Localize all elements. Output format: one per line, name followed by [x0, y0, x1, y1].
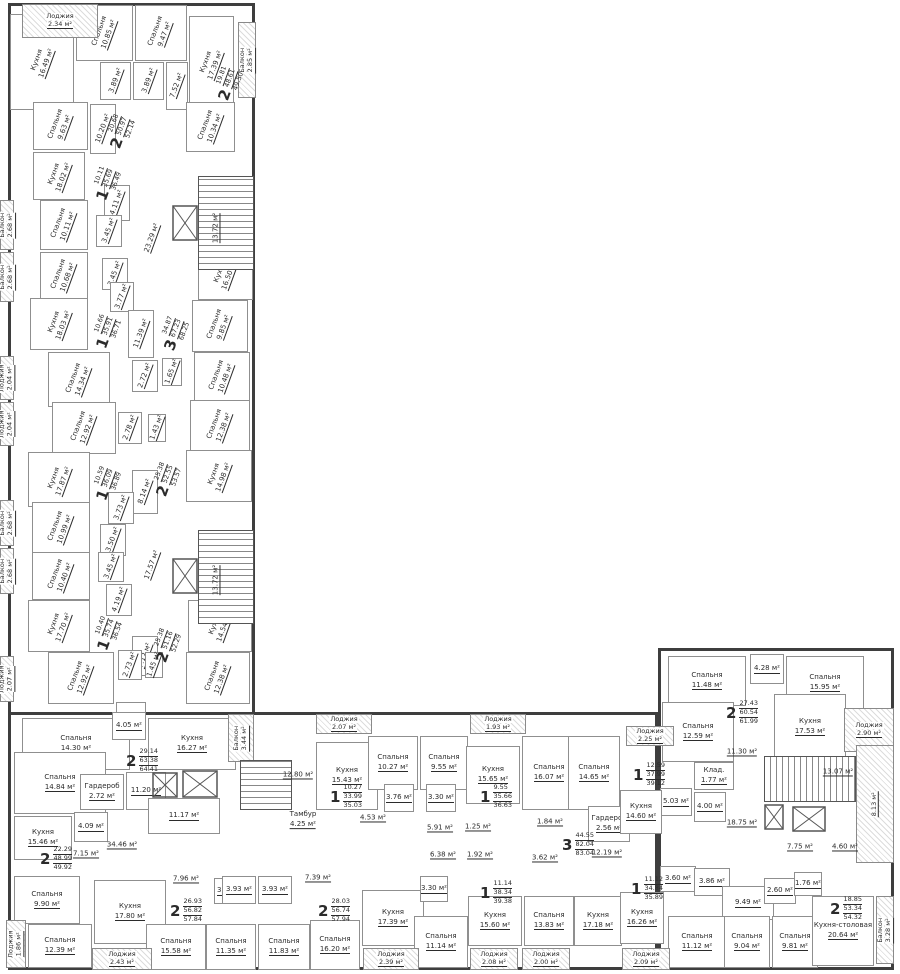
room-area: 15.58 м²	[161, 947, 191, 956]
area-label-name: Тамбур	[290, 811, 317, 819]
room: Кухня 17.70 м²	[28, 600, 90, 652]
apartment-total-area-with-balcony: 49.92	[53, 864, 72, 872]
apartment-total-area-with-balcony: 61.99	[739, 718, 758, 726]
area-label-value: 13.72 м²	[211, 565, 220, 595]
room-label: Кухня	[482, 766, 504, 774]
area-label-value: 6.38 м²	[430, 850, 456, 859]
room-area: 9.81 м²	[782, 942, 808, 951]
room-label: Кухня	[119, 903, 141, 911]
floor-plan: Кухня 16.49 м² Спальня 10.85 м² Спальня …	[0, 0, 900, 974]
balcony: Лоджия 2.39 м²	[363, 948, 419, 970]
room: Спальня 12.92 м²	[48, 652, 114, 704]
room-label: Спальня	[682, 723, 713, 731]
room: Спальня 12.92 м²	[52, 402, 116, 454]
balcony: Балкон 2.68 м²	[0, 548, 14, 594]
apartment-total-area-with-balcony: 83.04	[575, 850, 594, 858]
balcony-area: 2.25 м²	[637, 736, 663, 744]
area-label-value: 1.84 м²	[537, 817, 563, 826]
room: Кухня 14.60 м²	[620, 790, 662, 834]
room: Кухня 17.53 м²	[774, 694, 846, 760]
room-label: Кухня	[587, 912, 609, 920]
balcony-area: 2.07 м²	[7, 666, 15, 692]
balcony-label: Лоджия	[635, 728, 664, 735]
room-label: Спальня	[578, 764, 609, 772]
area-label: 13.07 м²	[823, 767, 853, 776]
room: Кухня 18.02 м²	[33, 152, 85, 200]
area-label: 7.96 м²	[173, 874, 199, 883]
room: Спальня 10.11 м²	[40, 200, 88, 250]
room-label: Спальня	[809, 674, 840, 682]
room-label: Спальня	[268, 938, 299, 946]
balcony-label: Балкон	[0, 212, 6, 239]
apartment-total-area-with-balcony: 39.38	[493, 898, 512, 906]
room-area: 1.43 м²	[148, 414, 165, 441]
room: Кухня 16.27 м²	[148, 718, 236, 770]
room-area: 3.93 м²	[262, 885, 288, 894]
balcony-area: 1.93 м²	[485, 724, 511, 732]
apartment-room-count: 1	[330, 788, 340, 806]
room-label: Спальня	[60, 735, 91, 743]
apartment-room-count: 1	[631, 880, 641, 898]
apartment-room-count: 1	[480, 788, 490, 806]
balcony: Лоджия 1.86 м²	[6, 920, 26, 968]
area-label-value: 1.25 м²	[465, 822, 491, 831]
room-label: Спальня	[44, 937, 75, 945]
apartment-total-area-with-balcony: 36.63	[493, 802, 512, 810]
room: Спальня 9.47 м²	[135, 5, 187, 61]
apartment-stats: 2 28.03 56.74 57.94	[318, 898, 350, 923]
room-label: Спальня	[44, 774, 75, 782]
room: 3.76 м²	[384, 784, 414, 812]
balcony-label: Лоджия	[107, 951, 136, 958]
balcony: Лоджия 2.07 м²	[316, 714, 372, 734]
room-area: 3.45 м²	[102, 553, 119, 580]
room-area: 16.27 м²	[177, 744, 207, 753]
room: Спальня 9.90 м²	[14, 876, 80, 924]
area-label: 5.91 м²	[427, 823, 453, 832]
area-label: 4.60 м²	[832, 842, 858, 851]
apartment-total-area-with-balcony: 57.94	[331, 916, 350, 924]
room-area: 3.89 м²	[107, 67, 124, 94]
room: 1.65 м²	[162, 358, 182, 386]
room-area: 14.65 м²	[579, 773, 609, 782]
room: Спальня 12.38 м²	[186, 652, 250, 704]
room-area: 9.90 м²	[34, 900, 60, 909]
room: Кухня 18.03 м²	[30, 298, 88, 350]
apartment-stats: 1 10.27 33.99 35.03	[330, 784, 362, 809]
balcony: Лоджия 1.93 м²	[470, 714, 526, 734]
balcony-area: 2.85 м²	[247, 47, 255, 73]
room-area: 17.80 м²	[115, 912, 145, 921]
room: Спальня 11.48 м²	[668, 656, 746, 706]
apartment-stats: 1 9.55 35.66 36.63	[480, 784, 512, 809]
room-area: 10.27 м²	[378, 763, 408, 772]
balcony-area: 1.86 м²	[16, 931, 24, 957]
apartment-room-count: 2	[726, 704, 736, 722]
area-label-value: 7.15 м²	[73, 849, 99, 858]
room-area: 3.30 м²	[421, 884, 447, 893]
area-label-value: 3.62 м²	[532, 853, 558, 862]
room-label: Спальня	[691, 672, 722, 680]
area-label: 4.53 м²	[360, 813, 386, 822]
room-area: 3.45 м²	[100, 217, 117, 244]
room: 2.60 м²	[764, 878, 796, 904]
room-area: 4.28 м²	[754, 664, 780, 673]
room-area: 1.65 м²	[163, 358, 180, 385]
balcony: Балкон 3.28 м²	[876, 896, 894, 964]
apartment-stats: 1 11.12 34.84 35.89	[631, 876, 663, 901]
room-area: 12.39 м²	[45, 946, 75, 955]
balcony-area: 2.07 м²	[331, 724, 357, 732]
room-area: 3.89 м²	[140, 67, 157, 94]
apartment-total-area-with-balcony: 35.89	[644, 894, 663, 902]
balcony-area: 2.68 м²	[7, 558, 15, 584]
room-area: 14.60 м²	[626, 812, 656, 821]
balcony-label: Лоджия	[531, 951, 560, 958]
room-label: Кухня	[382, 909, 404, 917]
room-area: 17.39 м²	[378, 918, 408, 927]
staircase-icon	[198, 530, 254, 624]
apartment-stats: 1 11.14 38.34 39.38	[480, 880, 512, 905]
room: Спальня 12.39 м²	[28, 924, 92, 968]
room: Кухня 14.98 м²	[186, 450, 252, 502]
room: Спальня 10.68 м²	[40, 252, 88, 300]
balcony-label: Балкон	[877, 917, 884, 944]
room: 2.73 м²	[118, 650, 142, 680]
room-label: Спальня	[319, 936, 350, 944]
room: 4.19 м²	[106, 584, 132, 616]
area-label: 12.80 м²	[283, 770, 313, 779]
room: Спальня 9.63 м²	[33, 102, 88, 150]
apartment-stats: 2 29.14 63.38 64.41	[126, 748, 158, 773]
area-label-value: 4.25 м²	[290, 820, 316, 829]
room: Кухня 17.18 м²	[574, 896, 622, 946]
room: 3.89 м²	[133, 62, 164, 100]
area-label-value: 7.39 м²	[305, 873, 331, 882]
balcony: Балкон 2.68 м²	[0, 200, 14, 250]
room-area: 20.64 м²	[828, 931, 858, 940]
room-area: 1.77 м²	[701, 776, 727, 785]
apartment-room-count: 1	[633, 766, 643, 784]
area-label: 1.84 м²	[537, 817, 563, 826]
area-label: 7.15 м²	[73, 849, 99, 858]
apartment-room-count: 2	[40, 850, 50, 868]
apartment-total-area-with-balcony: 54.32	[843, 914, 862, 922]
room: Спальня 13.83 м²	[524, 896, 574, 946]
room-label: Кухня	[630, 803, 652, 811]
balcony-label: Лоджия	[483, 716, 512, 723]
room-area: 11.35 м²	[216, 947, 246, 956]
room-area: 3.73 м²	[112, 494, 129, 521]
room-area: 3.76 м²	[386, 793, 412, 802]
elevator-icon	[792, 806, 826, 832]
room-area: 11.48 м²	[692, 681, 722, 690]
balcony-area: 8.13 м²	[871, 791, 879, 817]
room-label: Спальня	[428, 754, 459, 762]
room: 5.03 м²	[660, 788, 692, 816]
room-label: Спальня	[533, 912, 564, 920]
room-label: Спальня	[425, 933, 456, 941]
balcony-area: 2.68 м²	[7, 510, 15, 536]
room-label: Спальня	[779, 933, 810, 941]
room: 4.09 м²	[74, 812, 108, 842]
room: Спальня 9.04 м²	[724, 916, 770, 968]
area-label: 18.75 м²	[727, 818, 757, 827]
elevator-icon	[182, 770, 218, 798]
apartment-room-count: 3	[562, 836, 572, 854]
balcony: Балкон 3.44 м²	[228, 714, 254, 762]
room: 1.43 м²	[148, 414, 166, 442]
room-area: 11.39 м²	[132, 318, 151, 350]
room-area: 2.73 м²	[121, 651, 138, 678]
room-label: Спальня	[215, 938, 246, 946]
balcony-label: Балкон	[0, 510, 6, 537]
room-area: 11.12 м²	[682, 942, 712, 951]
room-label: Спальня	[377, 754, 408, 762]
room: Спальня 9.85 м²	[192, 300, 248, 352]
balcony-label: Лоджия	[479, 951, 508, 958]
area-label: 6.38 м²	[430, 850, 456, 859]
balcony-area: 2.68 м²	[7, 212, 15, 238]
room: Спальня 11.35 м²	[206, 924, 256, 970]
room-area: 7.52 м²	[168, 72, 185, 99]
room: Спальня 14.65 м²	[568, 736, 620, 810]
apartment-stats: 3 44.55 82.04 83.04	[562, 832, 594, 857]
room-area: 3.50 м²	[104, 526, 121, 553]
apartment-total-area-with-balcony: 64.41	[139, 766, 158, 774]
area-label-value: 1.92 м²	[467, 850, 493, 859]
room: Спальня 10.34 м²	[186, 102, 235, 152]
room-label: Кухня	[484, 912, 506, 920]
room: 1.76 м²	[794, 872, 822, 896]
area-label-value: 34.46 м²	[107, 840, 137, 849]
elevator-icon	[152, 772, 178, 798]
room: 2.72 м²	[132, 360, 158, 392]
area-label-value: 13.07 м²	[823, 767, 853, 776]
room: 3.45 м²	[96, 215, 122, 247]
room-label: Спальня	[160, 938, 191, 946]
room-area: 16.26 м²	[627, 918, 657, 927]
balcony-area: 2.04 м²	[7, 365, 15, 391]
area-label: 13.72 м²	[211, 565, 220, 595]
balcony: Лоджия 2.43 м²	[92, 948, 152, 970]
apartment-stats: 2 18.85 53.34 54.32	[830, 896, 862, 921]
elevator-icon	[172, 558, 198, 594]
staircase-icon	[764, 756, 856, 802]
room-area: 3.60 м²	[665, 874, 691, 883]
room-area: 17.53 м²	[795, 727, 825, 736]
balcony-label: Лоджия	[329, 716, 358, 723]
room-label: Спальня	[731, 933, 762, 941]
staircase-icon	[240, 760, 292, 810]
room-area: 11.83 м²	[269, 947, 299, 956]
room-area: 2.78 м²	[121, 414, 138, 441]
balcony-label: Балкон	[0, 558, 6, 585]
room: 3.89 м²	[100, 62, 131, 100]
room-label: Кухня	[631, 909, 653, 917]
room-area: 11.17 м²	[169, 811, 199, 820]
apartment-total-area-with-balcony: 39.12	[646, 780, 665, 788]
room-area: 15.95 м²	[810, 683, 840, 692]
room-area: 3.77 м²	[113, 283, 130, 310]
balcony: Лоджия 2.00 м²	[522, 948, 570, 970]
room-area: 16.20 м²	[320, 945, 350, 954]
balcony-label: Балкон	[0, 264, 6, 291]
room-label: Гардероб	[84, 783, 119, 791]
balcony: Балкон 2.68 м²	[0, 252, 14, 302]
room-area: 4.19 м²	[110, 586, 127, 613]
room-area: 15.60 м²	[480, 921, 510, 930]
room-label: Спальня	[533, 764, 564, 772]
room: Спальня 10.40 м²	[32, 552, 90, 600]
room: Спальня 10.48 м²	[194, 352, 250, 402]
balcony-label: Балкон	[233, 725, 240, 752]
room-area: 4.00 м²	[697, 802, 723, 811]
room-area: 2.72 м²	[136, 362, 153, 389]
room-area: 13.83 м²	[534, 921, 564, 930]
area-label-value: 4.60 м²	[832, 842, 858, 851]
staircase-icon	[198, 176, 254, 270]
room-area: 9.55 м²	[431, 763, 457, 772]
balcony-label: Балкон	[239, 47, 246, 74]
room: 3.30 м²	[426, 784, 456, 812]
room-area: 5.03 м²	[663, 797, 689, 806]
area-label-value: 4.53 м²	[360, 813, 386, 822]
balcony: Лоджия 2.04 м²	[0, 402, 14, 446]
balcony: Лоджия 2.04 м²	[0, 356, 14, 400]
room-label: Клад.	[704, 767, 725, 775]
balcony: Балкон 2.68 м²	[0, 500, 14, 546]
room-label: Кухня	[799, 718, 821, 726]
balcony-label: Лоджия	[376, 951, 405, 958]
room-area: 9.49 м²	[735, 898, 761, 907]
area-label: 11.30 м²	[727, 747, 757, 756]
room: 11.39 м²	[128, 310, 154, 358]
room: Спальня 11.12 м²	[668, 916, 726, 968]
apartment-stats: 2 22.29 48.99 49.92	[40, 846, 72, 871]
apartment-stats: 1 12.59 37.99 39.12	[633, 762, 665, 787]
balcony-label: Лоджия	[45, 13, 74, 20]
room: Спальня 14.34 м²	[48, 352, 110, 407]
room: Кухня 17.87 м²	[28, 452, 90, 507]
balcony-area: 2.04 м²	[7, 411, 15, 437]
room-label: Спальня	[31, 891, 62, 899]
balcony-area: 2.09 м²	[633, 959, 659, 967]
room-label: Кухня	[32, 829, 54, 837]
room: Клад. 1.77 м²	[694, 762, 734, 790]
balcony-area: 2.08 м²	[481, 959, 507, 967]
balcony-label: Лоджия	[854, 722, 883, 729]
room-label: Кухня	[336, 767, 358, 775]
area-label: 34.46 м²	[107, 840, 137, 849]
area-label: 7.39 м²	[305, 873, 331, 882]
elevator-icon	[764, 804, 784, 830]
apartment-stats: 2 26.93 56.82 57.84	[170, 898, 202, 923]
room-area: 4.09 м²	[78, 822, 104, 831]
room: Спальня 11.83 м²	[258, 924, 310, 970]
room-area: 3.93 м²	[226, 885, 252, 894]
balcony-area: 2.39 м²	[378, 959, 404, 967]
area-label-value: 7.96 м²	[173, 874, 199, 883]
room-area: 3.30 м²	[428, 793, 454, 802]
room: 3.77 м²	[110, 282, 134, 312]
room: 3.45 м²	[98, 552, 124, 582]
balcony-area: 2.34 м²	[47, 21, 73, 29]
room-label: Кухня	[181, 735, 203, 743]
apartment-room-count: 2	[126, 752, 136, 770]
area-label: 13.72 м²	[211, 213, 220, 243]
balcony-area: 3.28 м²	[885, 917, 893, 943]
room: Спальня 11.14 м²	[414, 916, 468, 968]
area-label-value: 5.91 м²	[427, 823, 453, 832]
apartment-room-count: 1	[480, 884, 490, 902]
area-label-value: 13.72 м²	[211, 213, 220, 243]
area-label-value: 12.80 м²	[283, 770, 313, 779]
area-label: 3.62 м²	[532, 853, 558, 862]
room: 3.60 м²	[660, 866, 696, 892]
area-label-value: 12.19 м²	[592, 848, 622, 857]
apartment-total-area-with-balcony: 35.03	[343, 802, 362, 810]
area-label-value: 18.75 м²	[727, 818, 757, 827]
balcony: Лоджия 2.07 м²	[0, 656, 14, 702]
apartment-room-count: 2	[830, 900, 840, 918]
room: 3.93 м²	[258, 876, 292, 904]
room: Спальня 10.27 м²	[368, 736, 418, 790]
area-label: 7.75 м²	[787, 842, 813, 851]
elevator-icon	[172, 205, 198, 241]
balcony-area: 3.44 м²	[241, 725, 249, 751]
room: 3.93 м²	[222, 876, 256, 904]
room-label: Кухня-столовая	[814, 922, 872, 930]
room-area: 17.18 м²	[583, 921, 613, 930]
balcony-area: 2.90 м²	[856, 730, 882, 738]
room: Спальня 15.58 м²	[146, 924, 206, 970]
balcony-area: 2.43 м²	[109, 959, 135, 967]
room-area: 2.72 м²	[89, 792, 115, 801]
room-area: 4.05 м²	[116, 721, 142, 730]
area-label-value: 11.30 м²	[727, 747, 757, 756]
area-label: 1.92 м²	[467, 850, 493, 859]
apartment-room-count: 2	[318, 902, 328, 920]
room: Гардероб 2.72 м²	[80, 774, 124, 810]
room: Спальня 10.99 м²	[32, 502, 90, 554]
apartment-total-area-with-balcony: 57.84	[183, 916, 202, 924]
room: Спальня 9.55 м²	[420, 736, 468, 790]
room: Спальня 12.38 м²	[190, 400, 250, 452]
room: 4.28 м²	[750, 654, 784, 684]
room: 11.17 м²	[148, 798, 220, 834]
balcony: 8.13 м²	[856, 745, 894, 863]
area-label: Тамбур 4.25 м²	[290, 811, 317, 829]
apartment-stats: 2 27.43 60.54 61.99	[726, 700, 758, 725]
room-area: 16.07 м²	[534, 773, 564, 782]
balcony-area: 2.68 м²	[7, 264, 15, 290]
room-area: 12.59 м²	[683, 732, 713, 741]
room: 2.78 м²	[118, 412, 142, 444]
area-label: 12.19 м²	[592, 848, 622, 857]
balcony-label: Лоджия	[631, 951, 660, 958]
apartment-room-count: 2	[170, 902, 180, 920]
room-area: 9.04 м²	[734, 942, 760, 951]
room-area: 11.14 м²	[426, 942, 456, 951]
room-area: 2.56 м²	[596, 824, 622, 833]
room-area: 2.60 м²	[767, 886, 793, 895]
balcony: Лоджия 2.34 м²	[22, 4, 98, 38]
balcony: Лоджия 2.09 м²	[622, 948, 670, 970]
area-label-value: 7.75 м²	[787, 842, 813, 851]
balcony-area: 2.00 м²	[533, 959, 559, 967]
room: 7.52 м²	[166, 62, 188, 110]
